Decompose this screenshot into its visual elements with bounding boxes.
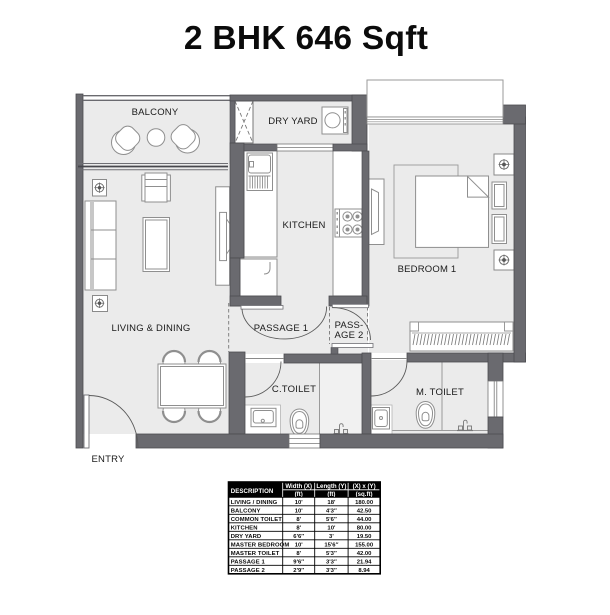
svg-text:6'6″: 6'6″: [293, 534, 304, 540]
svg-text:4'3″: 4'3″: [326, 508, 337, 514]
svg-text:LIVING / DINING: LIVING / DINING: [231, 500, 278, 506]
svg-text:PASSAGE 1: PASSAGE 1: [231, 559, 266, 565]
svg-text:PASSAGE 2: PASSAGE 2: [231, 568, 266, 574]
svg-text:5'3″: 5'3″: [326, 551, 337, 557]
svg-text:COMMON TOILET: COMMON TOILET: [231, 517, 283, 523]
svg-text:42.50: 42.50: [357, 508, 372, 514]
svg-text:(X) x (Y): (X) x (Y): [353, 483, 376, 490]
svg-text:DRY YARD: DRY YARD: [231, 534, 262, 540]
svg-text:80.00: 80.00: [357, 525, 372, 531]
svg-text:3': 3': [329, 534, 334, 540]
svg-text:KITCHEN: KITCHEN: [282, 220, 325, 231]
svg-text:C.TOILET: C.TOILET: [272, 384, 316, 395]
svg-text:Width (X): Width (X): [285, 483, 312, 490]
svg-text:8': 8': [296, 551, 301, 557]
svg-text:MASTER TOILET: MASTER TOILET: [231, 551, 280, 557]
svg-text:8': 8': [296, 525, 301, 531]
svg-text:19.50: 19.50: [357, 534, 372, 540]
svg-text:3'3″: 3'3″: [326, 568, 337, 574]
svg-text:10': 10': [327, 525, 336, 531]
svg-text:42.00: 42.00: [357, 551, 372, 557]
svg-text:18': 18': [327, 500, 336, 506]
svg-text:10': 10': [295, 542, 304, 548]
svg-text:44.00: 44.00: [357, 517, 372, 523]
svg-text:M. TOILET: M. TOILET: [416, 387, 464, 398]
svg-text:2 BHK 646 Sqft: 2 BHK 646 Sqft: [184, 20, 428, 57]
svg-text:10': 10': [295, 508, 304, 514]
svg-text:180.00: 180.00: [355, 500, 374, 506]
svg-text:8': 8': [296, 517, 301, 523]
svg-text:BALCONY: BALCONY: [132, 107, 179, 118]
svg-text:Length (Y): Length (Y): [316, 483, 346, 490]
svg-text:15'6″: 15'6″: [324, 542, 338, 548]
svg-text:BEDROOM 1: BEDROOM 1: [398, 264, 457, 275]
svg-text:155.00: 155.00: [355, 542, 374, 548]
svg-text:2'9″: 2'9″: [293, 568, 304, 574]
svg-text:DESCRIPTION: DESCRIPTION: [231, 488, 274, 495]
svg-text:3'3″: 3'3″: [326, 559, 337, 565]
svg-text:21.94: 21.94: [357, 559, 372, 565]
svg-text:BALCONY: BALCONY: [231, 508, 261, 514]
svg-text:PASSAGE 1: PASSAGE 1: [254, 323, 308, 334]
svg-text:KITCHEN: KITCHEN: [231, 525, 258, 531]
svg-text:8.94: 8.94: [358, 568, 370, 574]
svg-text:ENTRY: ENTRY: [91, 454, 124, 465]
svg-text:MASTER BEDROOM: MASTER BEDROOM: [231, 542, 290, 548]
svg-text:DRY YARD: DRY YARD: [268, 116, 317, 127]
svg-text:5'6″: 5'6″: [326, 517, 337, 523]
svg-text:9'6″: 9'6″: [293, 559, 304, 565]
svg-text:LIVING & DINING: LIVING & DINING: [111, 323, 190, 334]
svg-text:10': 10': [295, 500, 304, 506]
svg-text:AGE 2: AGE 2: [335, 330, 364, 341]
